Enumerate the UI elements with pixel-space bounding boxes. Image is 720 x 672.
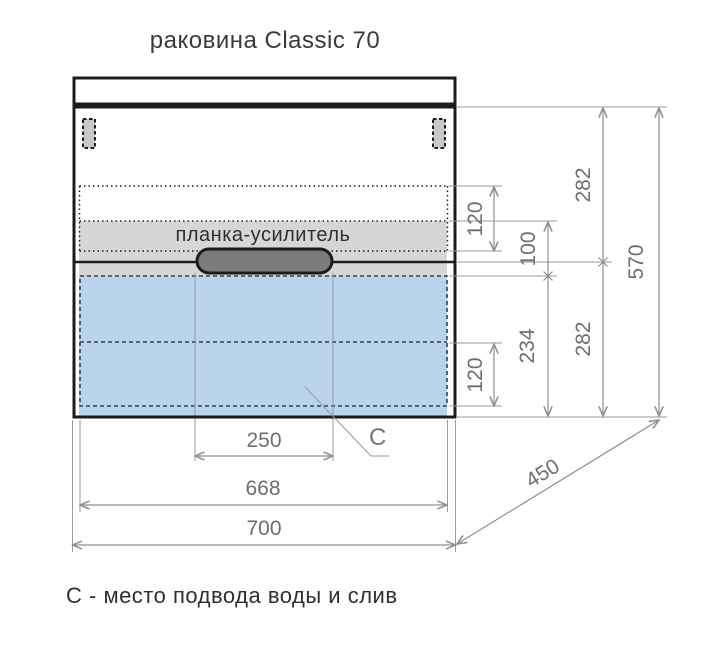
legend-caption: С - место подвода воды и слив [66, 583, 398, 609]
mounting-brackets [83, 119, 445, 148]
dim-drawer-zone-height: 120 [464, 330, 488, 420]
dim-drawer-height: 234 [516, 301, 540, 391]
dim-handle-width: 250 [204, 429, 324, 453]
dim-lower-section-height: 282 [572, 294, 596, 384]
drawer-front-zone [79, 275, 447, 416]
drawer-handle [197, 249, 332, 273]
countertop [74, 78, 455, 104]
dim-bar-zone-height: 100 [517, 204, 541, 294]
cabinet-drawing [0, 0, 720, 672]
dim-sink-zone-height: 120 [464, 174, 488, 264]
dim-upper-section-height: 282 [572, 140, 596, 230]
dimension-junction-marks [544, 258, 608, 281]
connection-point-label: С [369, 424, 386, 452]
technical-drawing-page: раковина Classic 70 [0, 0, 720, 672]
dim-total-width: 700 [204, 517, 324, 541]
reinforcement-bar-label: планка-усилитель [79, 224, 447, 247]
dim-inner-width: 668 [203, 477, 323, 501]
dim-total-height: 570 [625, 217, 649, 307]
